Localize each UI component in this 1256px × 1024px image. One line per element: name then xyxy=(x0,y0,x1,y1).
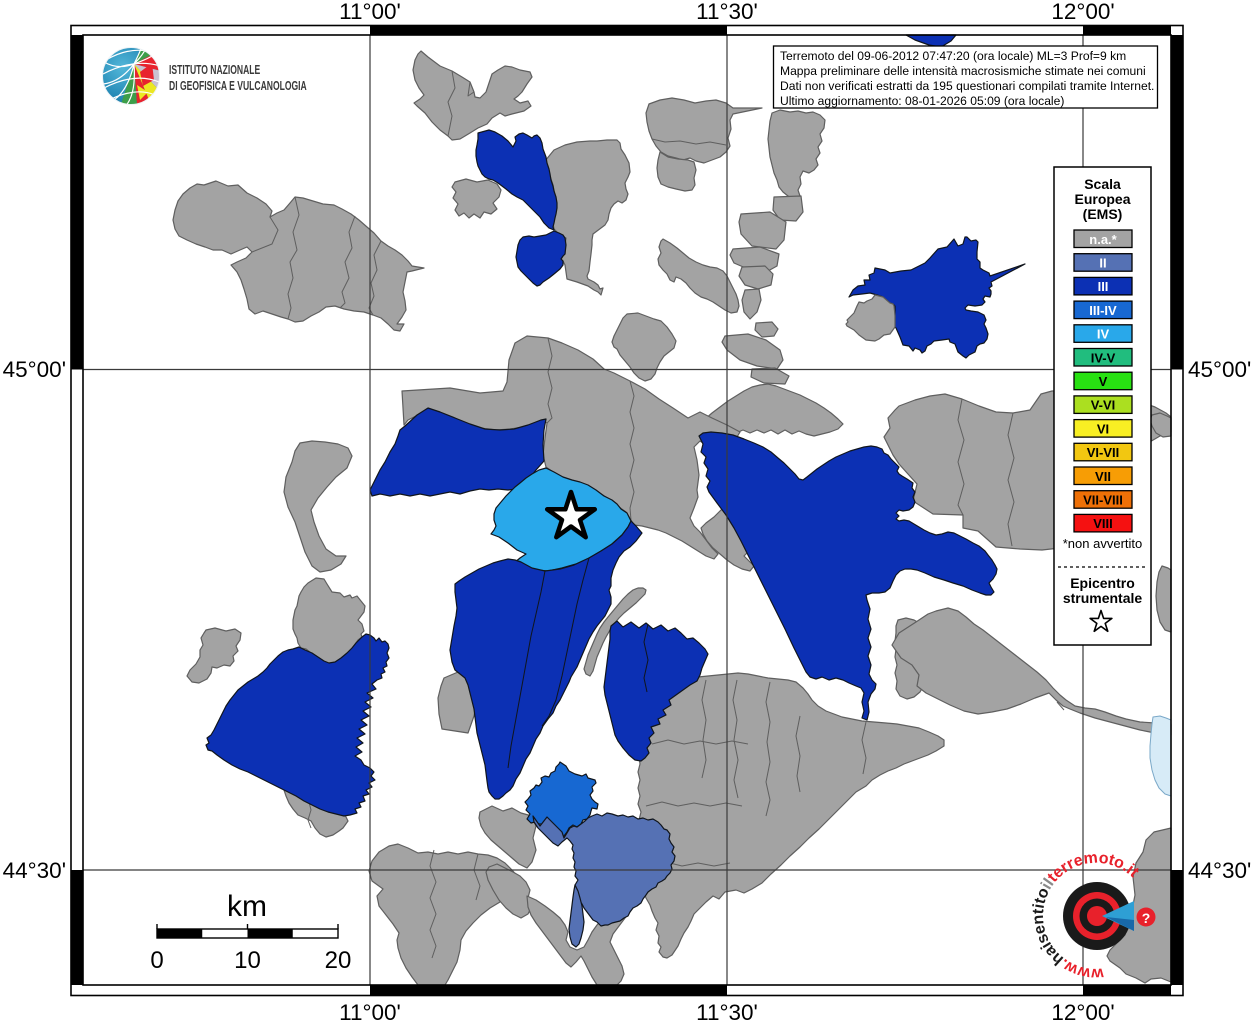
svg-text:0: 0 xyxy=(150,947,163,974)
svg-text:10: 10 xyxy=(234,947,261,974)
svg-text:45°00': 45°00' xyxy=(3,357,66,382)
svg-text:11°30': 11°30' xyxy=(696,1000,758,1024)
svg-text:ISTITUTO NAZIONALE: ISTITUTO NAZIONALE xyxy=(169,63,260,77)
svg-text:12°00': 12°00' xyxy=(1051,1000,1114,1024)
svg-text:n.a.*: n.a.* xyxy=(1089,232,1117,247)
svg-text:44°30': 44°30' xyxy=(1188,858,1251,883)
svg-text:Terremoto del 09-06-2012 07:47: Terremoto del 09-06-2012 07:47:20 (ora l… xyxy=(780,49,1126,63)
svg-text:V: V xyxy=(1099,374,1108,389)
svg-text:VI-VII: VI-VII xyxy=(1087,445,1120,460)
svg-text:Europea: Europea xyxy=(1074,191,1130,207)
svg-text:IV-V: IV-V xyxy=(1091,350,1116,365)
svg-text:strumentale: strumentale xyxy=(1063,590,1143,606)
svg-text:44°30': 44°30' xyxy=(3,858,66,883)
svg-text:Dati non verificati estratti d: Dati non verificati estratti da 195 ques… xyxy=(780,79,1154,93)
svg-text:?: ? xyxy=(1142,910,1151,926)
svg-text:II: II xyxy=(1099,256,1106,271)
svg-text:DI GEOFISICA E VULCANOLOGIA: DI GEOFISICA E VULCANOLOGIA xyxy=(169,79,307,93)
svg-text:km: km xyxy=(227,890,267,923)
svg-text:11°30': 11°30' xyxy=(696,0,758,24)
svg-text:Epicentro: Epicentro xyxy=(1070,575,1135,591)
svg-text:11°00': 11°00' xyxy=(339,1000,401,1024)
svg-text:(EMS): (EMS) xyxy=(1083,206,1123,222)
svg-text:VII: VII xyxy=(1095,469,1111,484)
svg-text:VI: VI xyxy=(1097,421,1109,436)
svg-text:*non avvertito: *non avvertito xyxy=(1063,536,1143,551)
svg-text:12°00': 12°00' xyxy=(1051,0,1114,24)
svg-text:VII-VIII: VII-VIII xyxy=(1083,493,1123,508)
svg-text:IV: IV xyxy=(1097,327,1110,342)
svg-text:Ultimo aggiornamento: 08-01-20: Ultimo aggiornamento: 08-01-2026 05:09 (… xyxy=(780,94,1064,108)
svg-text:V-VI: V-VI xyxy=(1091,398,1116,413)
svg-text:III-IV: III-IV xyxy=(1089,303,1117,318)
svg-text:11°00': 11°00' xyxy=(339,0,401,24)
svg-text:III: III xyxy=(1098,279,1109,294)
svg-text:20: 20 xyxy=(325,947,352,974)
svg-text:VIII: VIII xyxy=(1093,516,1113,531)
svg-text:45°00': 45°00' xyxy=(1188,357,1251,382)
svg-text:Mappa preliminare delle intens: Mappa preliminare delle intensità macros… xyxy=(780,64,1146,78)
svg-text:Scala: Scala xyxy=(1084,176,1121,192)
